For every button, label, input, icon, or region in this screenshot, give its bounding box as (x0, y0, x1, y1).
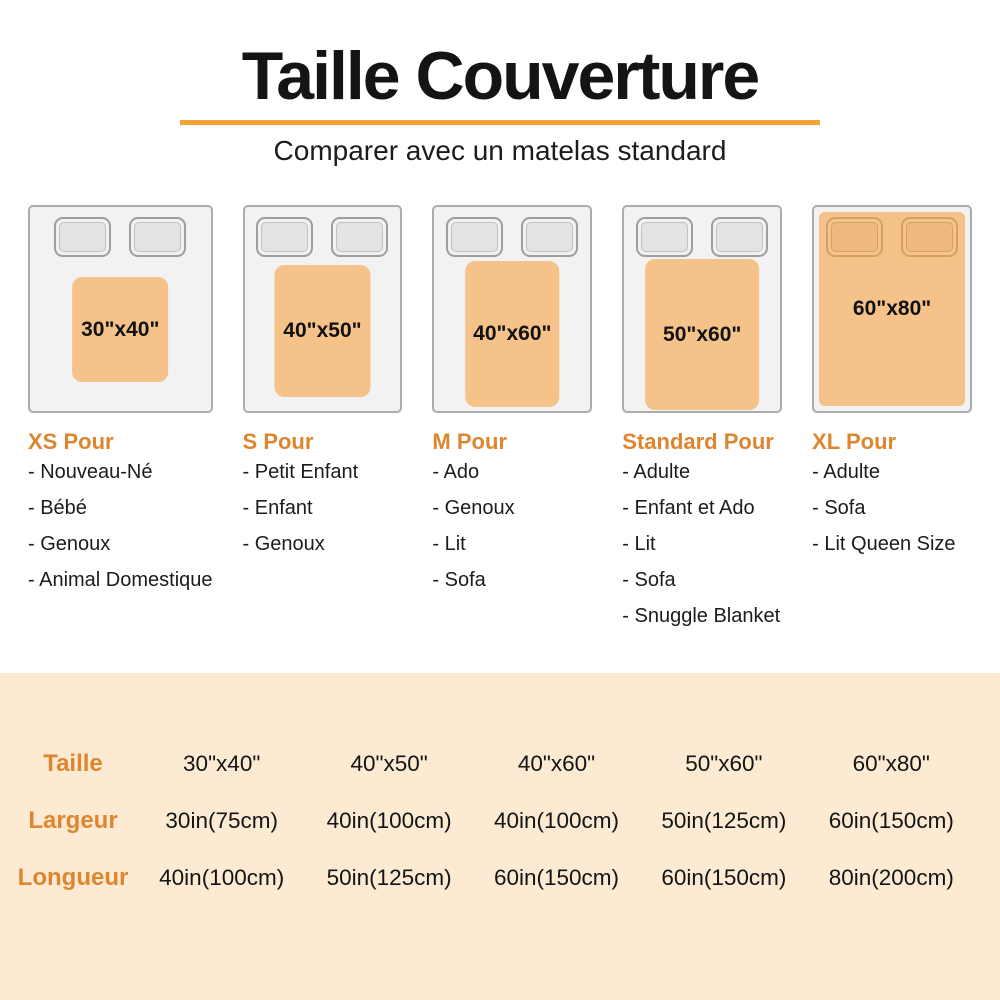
pillow-icon (521, 217, 578, 257)
spec-value-cell: 80in(200cm) (808, 865, 975, 891)
size-column: 40"x60" M Pour - Ado- Genoux- Lit- Sofa (432, 205, 592, 641)
blanket-size-label: 30"x40" (81, 318, 159, 342)
mattress-diagram: 60"x80" (812, 205, 972, 413)
spec-value-cell: 40"x50" (305, 751, 472, 777)
size-comparison-row: 30"x40" XS Pour - Nouveau-Né- Bébé- Geno… (0, 205, 1000, 641)
category-heading: S Pour (243, 429, 403, 455)
pillow-inner (716, 222, 763, 252)
use-list: - Nouveau-Né- Bébé- Genoux- Animal Domes… (28, 461, 213, 592)
pillow-icon (331, 217, 388, 257)
size-column: 50"x60" Standard Pour - Adulte- Enfant e… (622, 205, 782, 641)
use-list-item: - Adulte (812, 461, 972, 484)
use-list: - Ado- Genoux- Lit- Sofa (432, 461, 592, 592)
pillows (624, 217, 780, 257)
blanket-overlay: 40"x60" (466, 261, 560, 407)
category-heading: XS Pour (28, 429, 213, 455)
spec-value-cell: 40in(100cm) (473, 808, 640, 834)
spec-table-section: Taille30"x40"40"x50"40"x60"50"x60"60"x80… (0, 673, 1000, 1000)
blanket-size-infographic: Taille Couverture Comparer avec un matel… (0, 0, 1000, 641)
pillow-icon (711, 217, 768, 257)
pillow-icon (129, 217, 186, 257)
mattress-diagram: 40"x50" (243, 205, 403, 413)
spec-value-cell: 60"x80" (808, 751, 975, 777)
category-heading: Standard Pour (622, 429, 782, 455)
spec-value-cell: 40"x60" (473, 751, 640, 777)
spec-value-cell: 60in(150cm) (640, 865, 807, 891)
use-list-item: - Lit (432, 533, 592, 556)
use-list-item: - Sofa (622, 569, 782, 592)
use-list-item: - Lit Queen Size (812, 533, 972, 556)
page-title: Taille Couverture (0, 42, 1000, 111)
use-list-item: - Genoux (28, 533, 213, 556)
pillows (814, 217, 970, 257)
mattress-diagram: 40"x60" (432, 205, 592, 413)
spec-value-cell: 60in(150cm) (473, 865, 640, 891)
pillows (30, 217, 211, 257)
category-heading: M Pour (432, 429, 592, 455)
pillow-icon (901, 217, 958, 257)
pillow-icon (826, 217, 883, 257)
pillow-inner (336, 222, 383, 252)
blanket-overlay: 50"x60" (645, 259, 759, 410)
size-column: 60"x80" XL Pour - Adulte- Sofa- Lit Quee… (812, 205, 972, 641)
pillows (245, 217, 401, 257)
spec-row-label: Largeur (8, 807, 138, 835)
blanket-overlay: 30"x40" (72, 277, 168, 382)
blanket-size-label: 40"x50" (283, 319, 361, 343)
spec-value-cell: 50in(125cm) (640, 808, 807, 834)
spec-value-cell: 40in(100cm) (138, 865, 305, 891)
use-list-item: - Lit (622, 533, 782, 556)
spec-value-cell: 50"x60" (640, 751, 807, 777)
spec-value-cell: 30"x40" (138, 751, 305, 777)
use-list-item: - Enfant et Ado (622, 497, 782, 520)
use-list-item: - Nouveau-Né (28, 461, 213, 484)
spec-value-cell: 30in(75cm) (138, 808, 305, 834)
mattress-diagram: 50"x60" (622, 205, 782, 413)
use-list-item: - Bébé (28, 497, 213, 520)
pillow-inner (451, 222, 498, 252)
use-list-item: - Genoux (243, 533, 403, 556)
use-list-item: - Sofa (432, 569, 592, 592)
pillow-icon (256, 217, 313, 257)
spec-value-cell: 60in(150cm) (808, 808, 975, 834)
blanket-size-label: 40"x60" (473, 322, 551, 346)
use-list: - Petit Enfant- Enfant- Genoux (243, 461, 403, 556)
use-list-item: - Snuggle Blanket (622, 605, 782, 628)
pillow-icon (446, 217, 503, 257)
spec-row-label: Taille (8, 750, 138, 778)
pillow-inner (831, 222, 878, 252)
use-list-item: - Sofa (812, 497, 972, 520)
use-list-item: - Adulte (622, 461, 782, 484)
category-heading: XL Pour (812, 429, 972, 455)
pillow-inner (261, 222, 308, 252)
page-subtitle: Comparer avec un matelas standard (0, 135, 1000, 167)
pillow-icon (54, 217, 111, 257)
pillow-inner (59, 222, 106, 252)
pillow-icon (636, 217, 693, 257)
pillow-inner (906, 222, 953, 252)
use-list-item: - Petit Enfant (243, 461, 403, 484)
spec-value-cell: 40in(100cm) (305, 808, 472, 834)
title-underline-accent (180, 120, 820, 125)
size-column: 30"x40" XS Pour - Nouveau-Né- Bébé- Geno… (28, 205, 213, 641)
blanket-overlay: 40"x50" (275, 265, 370, 397)
use-list-item: - Ado (432, 461, 592, 484)
size-column: 40"x50" S Pour - Petit Enfant- Enfant- G… (243, 205, 403, 641)
pillows (434, 217, 590, 257)
pillow-inner (641, 222, 688, 252)
blanket-size-label: 50"x60" (663, 323, 741, 347)
pillow-inner (134, 222, 181, 252)
spec-row-label: Longueur (8, 864, 138, 892)
use-list-item: - Genoux (432, 497, 592, 520)
use-list: - Adulte- Sofa- Lit Queen Size (812, 461, 972, 556)
spec-value-cell: 50in(125cm) (305, 865, 472, 891)
pillow-inner (526, 222, 573, 252)
blanket-size-label: 60"x80" (853, 297, 931, 321)
mattress-diagram: 30"x40" (28, 205, 213, 413)
spec-table: Taille30"x40"40"x50"40"x60"50"x60"60"x80… (0, 673, 1000, 906)
use-list: - Adulte- Enfant et Ado- Lit- Sofa- Snug… (622, 461, 782, 628)
header: Taille Couverture Comparer avec un matel… (0, 0, 1000, 167)
use-list-item: - Enfant (243, 497, 403, 520)
use-list-item: - Animal Domestique (28, 569, 213, 592)
